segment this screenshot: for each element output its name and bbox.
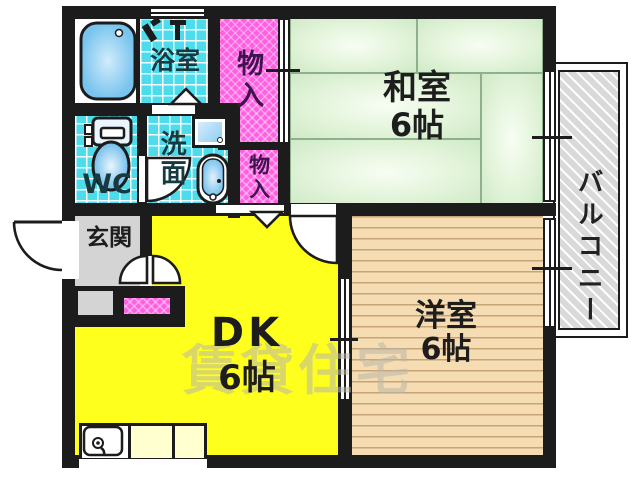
entrance-inner-door-arc-right [153, 256, 180, 283]
storage-mid-label: 物入 [247, 152, 270, 204]
dk-name: DK [211, 310, 283, 356]
floor-plan: 賃貸住宅 浴室 物入 物入 WC 洗面 玄関 和室 6帖 DK 6帖 洋室 6帖… [0, 0, 640, 480]
entrance-label: 玄関 [80, 226, 138, 251]
washing-machine-icon [192, 116, 228, 148]
storage-top-label: 物入 [233, 42, 262, 120]
japanese-room-size: 6帖 [390, 106, 444, 144]
wc-label: WC [79, 170, 135, 199]
entrance-inner-door-arc-left [120, 256, 147, 283]
western-room-label: 洋室 6帖 [397, 300, 495, 367]
shower-faucet-icon [142, 19, 190, 45]
bathtub-icon [78, 20, 138, 102]
japanese-room-door-arc [290, 216, 337, 263]
western-room-size: 6帖 [421, 332, 472, 367]
entrance-door-arc [14, 222, 62, 270]
washroom-label: 洗面 [157, 126, 185, 192]
dk-size: 6帖 [218, 358, 276, 398]
japanese-room-label: 和室 6帖 [368, 70, 466, 143]
dk-label: DK 6帖 [194, 312, 300, 398]
counter-base-strip [79, 459, 207, 470]
balcony-label: バルコニー [574, 145, 602, 350]
sink-icon [196, 153, 230, 205]
storage-mid-door-triangle [252, 212, 282, 227]
bathroom-label: 浴室 [143, 47, 207, 74]
kitchen-sink-icon [82, 425, 128, 459]
bathroom-door-triangle [171, 89, 201, 104]
western-room-name: 洋室 [415, 298, 477, 334]
japanese-room-name: 和室 [383, 68, 451, 108]
